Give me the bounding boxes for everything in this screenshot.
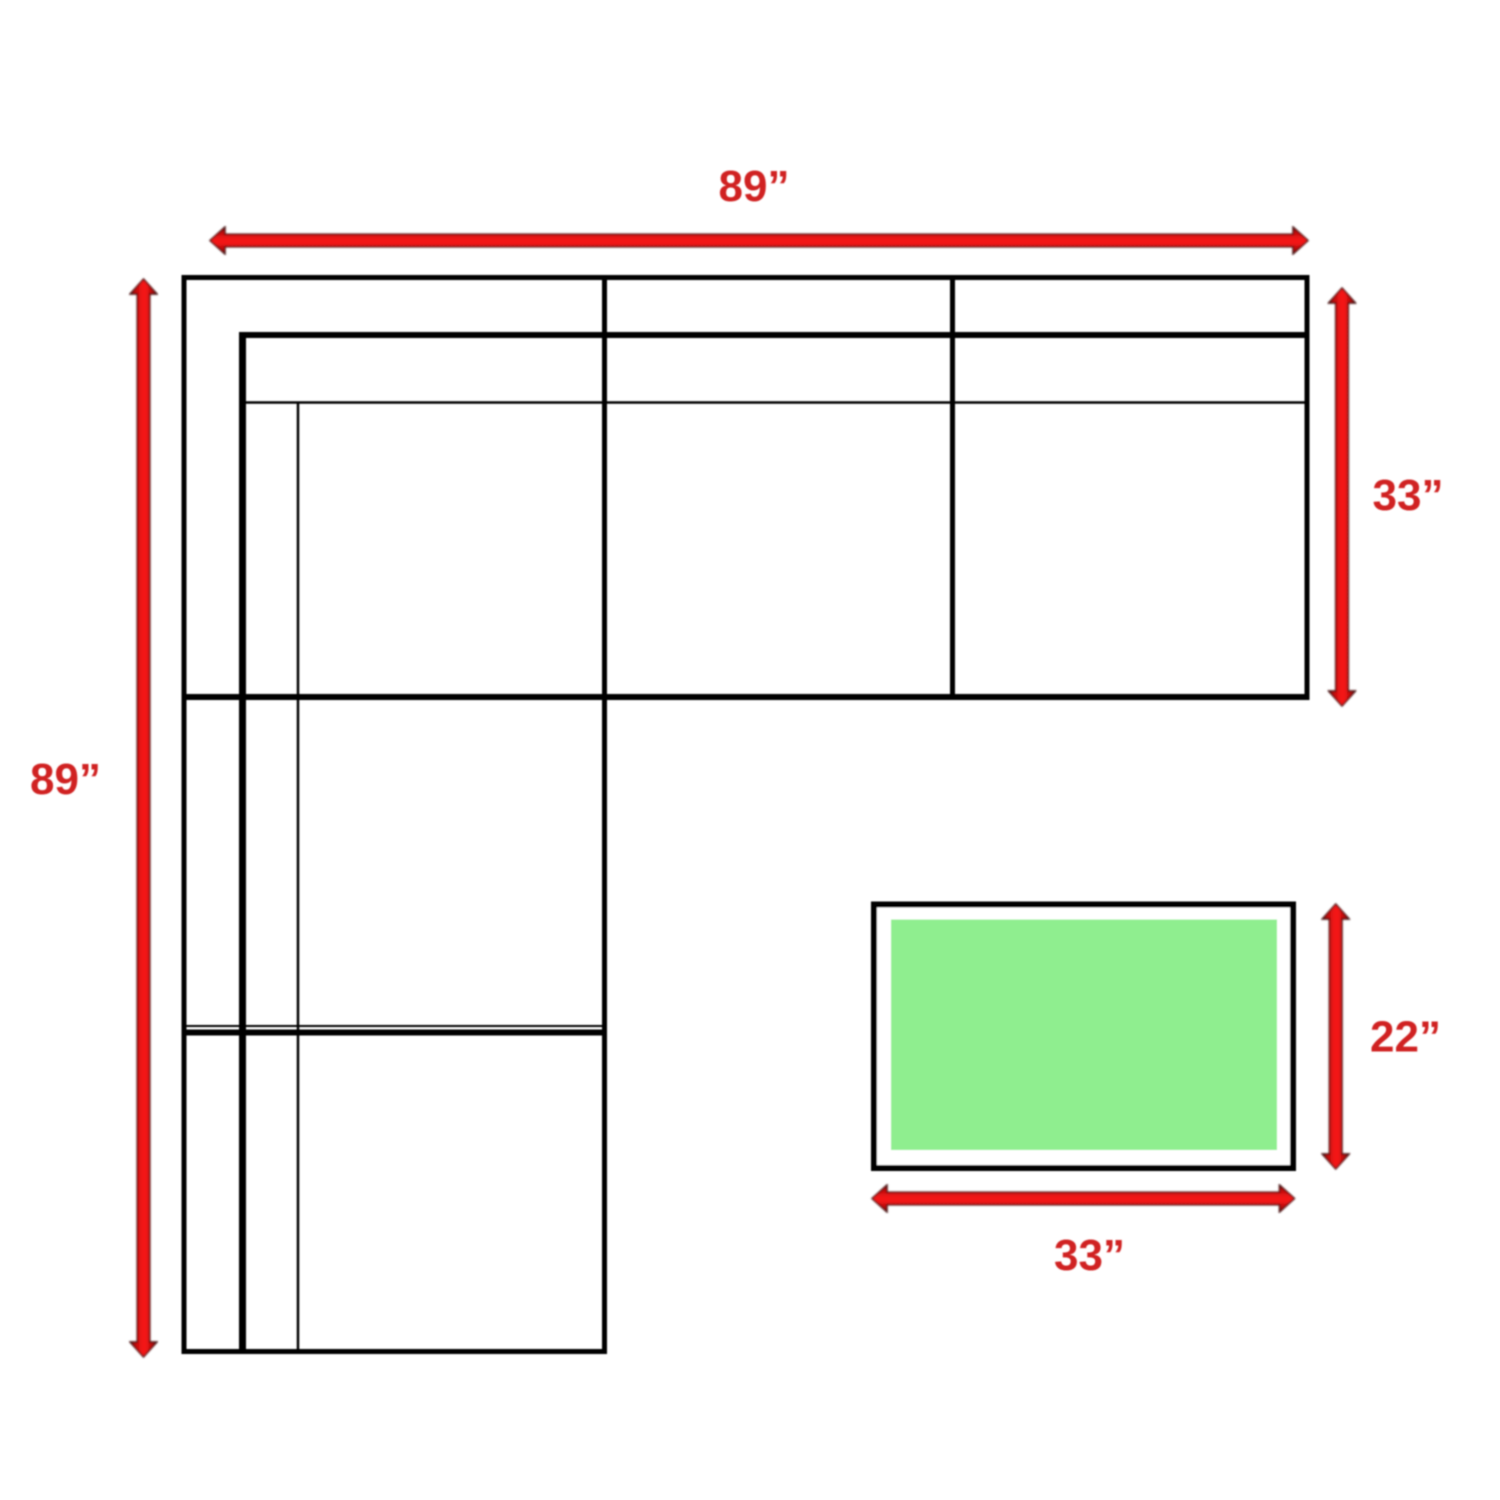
svg-text:22”: 22” [1370,1013,1441,1062]
svg-text:33”: 33” [1054,1231,1125,1280]
svg-text:89”: 89” [30,755,101,804]
svg-text:89”: 89” [719,162,790,211]
svg-text:33”: 33” [1373,471,1444,520]
